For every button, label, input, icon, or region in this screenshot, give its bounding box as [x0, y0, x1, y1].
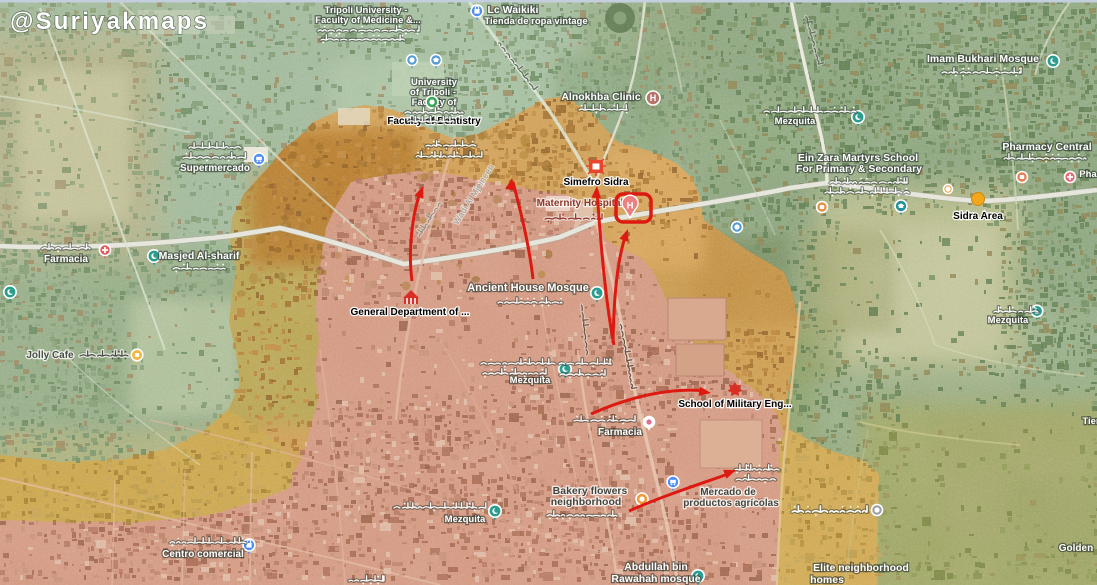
svg-text:Farmacia: Farmacia — [44, 254, 88, 265]
svg-text:Abdullah bin: Abdullah bin — [624, 561, 688, 573]
svg-text:Rawahah mosque: Rawahah mosque — [611, 573, 700, 585]
svg-text:Faculty of Medicine &...: Faculty of Medicine &... — [315, 15, 421, 26]
svg-text:Mezquita: Mezquita — [445, 514, 486, 525]
svg-text:Pharmacy Central: Pharmacy Central — [1002, 141, 1091, 153]
svg-text:For Primary & Secondary: For Primary & Secondary — [796, 163, 922, 175]
svg-text:Masjed Al-sharif: Masjed Al-sharif — [159, 250, 240, 262]
svg-text:Mercado de: Mercado de — [700, 487, 756, 498]
svg-text:Mezquita: Mezquita — [510, 375, 551, 386]
svg-text:Elite neighborhood: Elite neighborhood — [813, 562, 909, 574]
svg-text:homes: homes — [810, 574, 844, 585]
svg-text:Sidra Area: Sidra Area — [953, 211, 1003, 222]
svg-text:neighborhood: neighborhood — [551, 496, 622, 508]
svg-text:Ancient House Mosque: Ancient House Mosque — [467, 282, 589, 294]
svg-text:Lc Waikiki: Lc Waikiki — [488, 4, 539, 16]
svg-text:@Suriyakmaps: @Suriyakmaps — [10, 8, 209, 35]
svg-text:Imam Bukhari Mosque: Imam Bukhari Mosque — [927, 53, 1039, 65]
svg-text:Alnokhba Clinic: Alnokhba Clinic — [561, 91, 641, 103]
svg-text:Centro comercial: Centro comercial — [162, 549, 244, 560]
svg-text:Mezquita: Mezquita — [775, 116, 816, 127]
svg-text:School of Military Eng...: School of Military Eng... — [678, 399, 792, 410]
svg-text:Farmacia: Farmacia — [598, 427, 642, 438]
svg-text:Tienda de ropa vintage: Tienda de ropa vintage — [484, 16, 587, 27]
svg-text:H: H — [650, 93, 657, 103]
svg-text:H: H — [627, 201, 634, 212]
svg-text:Pha: Pha — [1079, 169, 1097, 180]
svg-text:productos agrícolas: productos agrícolas — [683, 498, 779, 509]
svg-text:General Department of ...: General Department of ... — [351, 307, 470, 318]
svg-text:Simefro Sidra: Simefro Sidra — [563, 177, 628, 188]
svg-text:Supermercado: Supermercado — [180, 163, 250, 174]
svg-text:Tien: Tien — [1082, 416, 1097, 427]
svg-text:Golden: Golden — [1059, 543, 1093, 554]
svg-text:Jolly Cafe: Jolly Cafe — [26, 350, 74, 361]
svg-text:Maternity Hospital: Maternity Hospital — [537, 198, 624, 209]
svg-text:Mezquita: Mezquita — [988, 315, 1029, 326]
